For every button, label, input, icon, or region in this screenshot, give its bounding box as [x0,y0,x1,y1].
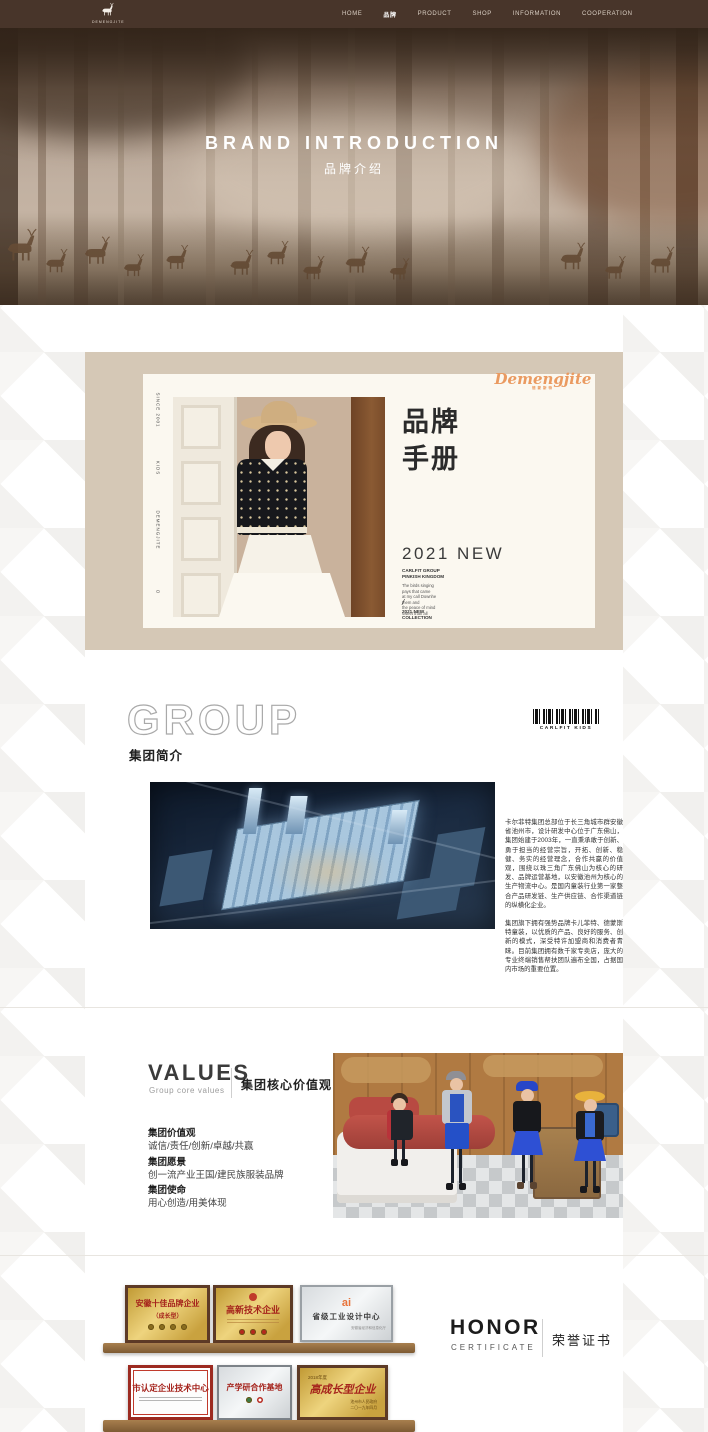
design-center-logo: ai [342,1297,351,1309]
values-heading-sub: Group core values [149,1086,225,1095]
nav-item-cooperation[interactable]: COOPERATION [582,11,633,17]
vertical-divider [542,1319,543,1357]
brown-door [351,397,385,617]
deer-logo-icon [100,2,115,16]
kid-figure-3 [511,1081,545,1205]
section-divider [0,1007,708,1008]
hero-banner: BRAND INTRODUCTION 品牌介绍 [0,28,708,305]
door-panel [181,461,221,505]
top-nav: DEMENGJITE HOME 品牌 PRODUCT SHOP INFORMAT… [0,0,708,28]
honor-heading-en: HONOR [450,1316,541,1340]
plaque-high-growth: 2018年度 高成长型企业 池州市人民政府 二〇一九年四月 [297,1365,388,1420]
barcode-label: CARLFIT KIDS [533,726,599,731]
brand-book-card: SINCE 2001 KIDS DEMENGJITE O [85,352,623,650]
plaque-footer: 池州市人民政府 [350,1400,377,1405]
slash-mark: / [402,598,404,607]
kid-boot [391,1159,398,1166]
medal-icons [239,1329,267,1335]
city-block [159,849,212,906]
door-panel [181,517,221,561]
plaque-subtitle: （成长型） [152,1311,182,1320]
group-paragraph-2: 集团旗下拥有强势品牌卡儿菲特、德蒙斯特童装，以优质的产品、良好的服务、创新的模式… [505,919,623,974]
side-text-since: SINCE 2001 [156,392,161,427]
door-panel [181,573,221,617]
group-paragraph-1: 卡尔菲特集团总部位于长三角城市群安徽省池州市，设计研发中心位于广东佛山，集团始建… [505,818,623,910]
values-heading-cn: 集团核心价值观 [241,1076,332,1093]
values-item-title: 集团使命 [148,1182,186,1196]
values-kids-photo [333,1053,623,1218]
plaque-title: 省级工业设计中心 [313,1311,381,1322]
kid-boot [580,1186,587,1193]
girl-skirt-layer [219,573,345,617]
kid-top [585,1113,595,1137]
wood-shelf [103,1420,415,1432]
kid-boot [401,1159,408,1166]
kid-jacket [387,1110,413,1140]
kid-legs [394,1139,405,1161]
kid-boot [517,1182,524,1189]
script-logo: Demengjite 德蒙斯特 [493,370,593,391]
caption-line: The birds singing [402,583,436,589]
plaque-tech-center: 市认定企业技术中心 [128,1365,213,1420]
side-text-brand: DEMENGJITE [156,510,161,549]
girl-hat-top [261,401,297,423]
kid-leather-jacket [513,1101,541,1133]
brand-book-title: 品牌 手册 [402,404,460,478]
kid-tutu-skirt [511,1131,543,1155]
door-panel [181,405,221,449]
values-item-text: 用心创造/用美体现 [148,1195,227,1209]
brand-book-title-line1: 品牌 [402,404,460,441]
brand-book-year: 2021 NEW [402,544,504,564]
white-door [173,397,237,617]
plaque-footer: 二〇一九年四月 [350,1406,377,1411]
fine-print [227,1319,279,1325]
plaque-footer: 安徽省经济和信息化厅 [351,1326,386,1331]
brand-book-title-line2: 手册 [402,441,460,478]
kid-boot [446,1183,453,1190]
brand-logo-text: DEMENGJITE [92,20,122,24]
values-item-text: 创一流产业王国/建民族服装品牌 [148,1167,284,1181]
wall-panel [483,1055,603,1077]
section-divider [0,1255,708,1256]
kid-shorts [445,1123,469,1149]
fine-print [139,1397,202,1403]
values-heading-en: VALUES [148,1060,251,1086]
barcode-icon [533,709,599,724]
plaque-hightech: 高新技术企业 [213,1285,293,1343]
plaque-title: 产学研合作基地 [227,1382,283,1393]
kid-boot [593,1186,600,1193]
nav-item-home[interactable]: HOME [342,11,362,17]
caption-line: at my call Downhe [402,594,436,600]
honor-heading-cn: 荣誉证书 [552,1330,612,1349]
kid-legs [585,1161,596,1187]
plaque-cooperation-base: 产学研合作基地 [217,1365,292,1420]
kid-figure-1 [385,1093,415,1183]
group-heading-cn: 集团简介 [129,745,183,764]
girl-face [265,431,291,461]
page: DEMENGJITE HOME 品牌 PRODUCT SHOP INFORMAT… [0,0,708,1432]
values-item-text: 诚信/责任/创新/卓越/共赢 [148,1138,254,1152]
honor-heading-sub: CERTIFICATE [451,1343,536,1352]
nav-item-shop[interactable]: SHOP [472,11,491,17]
nav-item-information[interactable]: INFORMATION [513,11,561,17]
wall-panel [341,1057,431,1083]
group-heading-en: GROUP [127,696,301,744]
nav-item-brand[interactable]: 品牌 [383,10,396,19]
plaque-title: 安徽十佳品牌企业 [136,1298,200,1309]
collection-line: COLLECTION [402,615,432,621]
city-block [397,873,464,920]
brand-book-caption-bold: CARLFIT GROUP PINKISH KINGDOM [402,568,444,580]
page-title: BRAND INTRODUCTION [0,133,708,154]
side-text-mark: O [156,590,161,595]
group-description: 卡尔菲特集团总部位于长三角城市群安徽省池州市，设计研发中心位于广东佛山，集团始建… [505,818,623,974]
plaque-title: 市认定企业技术中心 [132,1382,209,1394]
wood-shelf [103,1343,415,1353]
plaque-design-center: ai 省级工业设计中心 安徽省经济和信息化厅 [300,1285,393,1342]
medal-icons [148,1324,187,1330]
logo-icons [246,1397,263,1403]
caption-bold-line: PINKISH KINGDOM [402,574,444,580]
kid-boot [530,1182,537,1189]
girl-cuff [237,527,307,533]
plaque-top-brand: 安徽十佳品牌企业 （成长型） [125,1285,210,1343]
collection-label: 2021 NEW COLLECTION [402,609,432,621]
brand-logo[interactable]: DEMENGJITE [92,2,122,24]
vertical-divider [231,1068,232,1098]
group-building-photo [150,782,495,929]
plaque-title: 高成长型企业 [310,1381,376,1397]
kid-skirt [574,1139,606,1161]
nav-menu: HOME 品牌 PRODUCT SHOP INFORMATION COOPERA… [342,0,633,28]
emblem-icon [249,1293,257,1301]
nav-item-product[interactable]: PRODUCT [418,11,452,17]
values-item-title: 集团愿景 [148,1154,186,1168]
side-text-kids: KIDS [156,461,161,476]
kid-figure-2 [441,1071,475,1205]
content-column: SINCE 2001 KIDS DEMENGJITE O [85,305,623,1432]
kid-legs [522,1155,533,1183]
kid-boot [459,1183,466,1190]
light-glow [270,842,390,902]
values-item-title: 集团价值观 [148,1125,196,1139]
brand-book-photo [173,397,385,617]
kid-legs [451,1149,462,1183]
kid-top [450,1094,464,1122]
page-subtitle: 品牌介绍 [0,160,708,177]
girl-jacket [237,459,307,535]
plaque-title: 高新技术企业 [226,1303,280,1316]
kid-figure-4 [573,1091,609,1207]
